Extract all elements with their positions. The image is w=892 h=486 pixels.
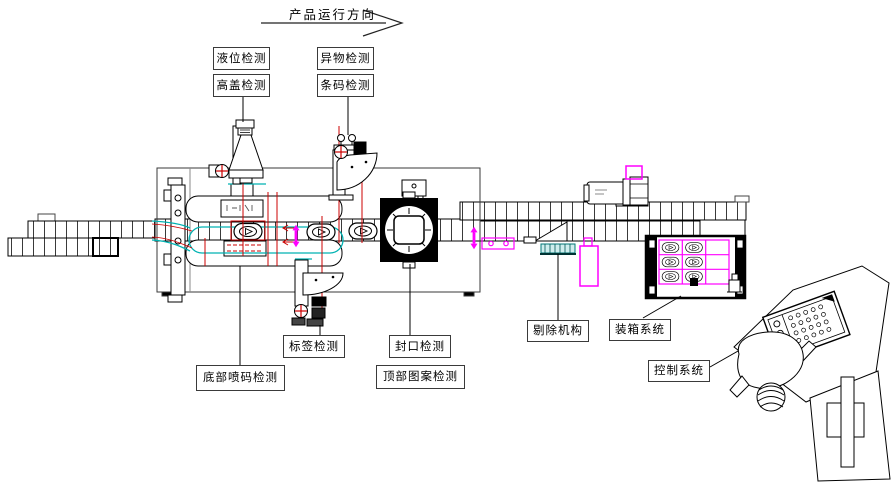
bottle-icon <box>686 257 703 267</box>
label-box-high-cap: 高盖检测 <box>213 74 270 97</box>
production-line-diagram: 产品运行方向 液位检测 高盖检测 异物检测 条码检测 标签检测 封口检测 底部喷… <box>0 0 892 486</box>
label-scanner <box>292 260 343 326</box>
bottle-icon <box>662 272 679 282</box>
liquid-level-camera <box>209 120 263 184</box>
seal-detector <box>380 180 438 268</box>
machine-upper-plate <box>186 184 342 222</box>
pick-head <box>690 278 698 286</box>
bottle-icon <box>686 243 703 253</box>
adjust-wheel-icon <box>335 146 348 159</box>
label-box-barcode: 条码检测 <box>317 74 374 97</box>
flow-direction-label: 产品运行方向 <box>289 4 376 23</box>
label-box-control: 控制系统 <box>648 360 710 382</box>
bottle-icon <box>662 243 679 253</box>
bottle-icon <box>662 257 679 267</box>
infeed-conveyors <box>8 214 178 256</box>
label-box-label-check: 标签检测 <box>283 335 345 358</box>
label-box-liquid-level: 液位检测 <box>213 47 270 70</box>
label-box-reject: 剔除机构 <box>527 320 589 342</box>
monitor-side <box>841 377 854 467</box>
label-box-seal: 封口检测 <box>389 335 451 358</box>
bottle-icon <box>349 223 377 239</box>
belt-motor <box>584 166 648 206</box>
adjust-wheel-icon <box>295 305 308 318</box>
reject-mechanism <box>540 238 598 286</box>
diagram-drawing <box>0 0 892 486</box>
barcode-scanner <box>329 135 377 201</box>
control-station <box>730 266 890 481</box>
label-box-top-pattern: 顶部图案检测 <box>376 365 465 389</box>
boxing-machine <box>646 236 745 298</box>
adjust-wheel-icon <box>216 165 229 178</box>
label-box-foreign-object: 异物检测 <box>317 47 374 70</box>
bottle-icon <box>307 224 335 240</box>
label-box-bottom-inkjet: 底部喷码检测 <box>196 365 285 391</box>
bottle-icon <box>234 224 262 240</box>
label-box-boxing: 装箱系统 <box>609 319 671 341</box>
operator-head <box>757 383 785 411</box>
